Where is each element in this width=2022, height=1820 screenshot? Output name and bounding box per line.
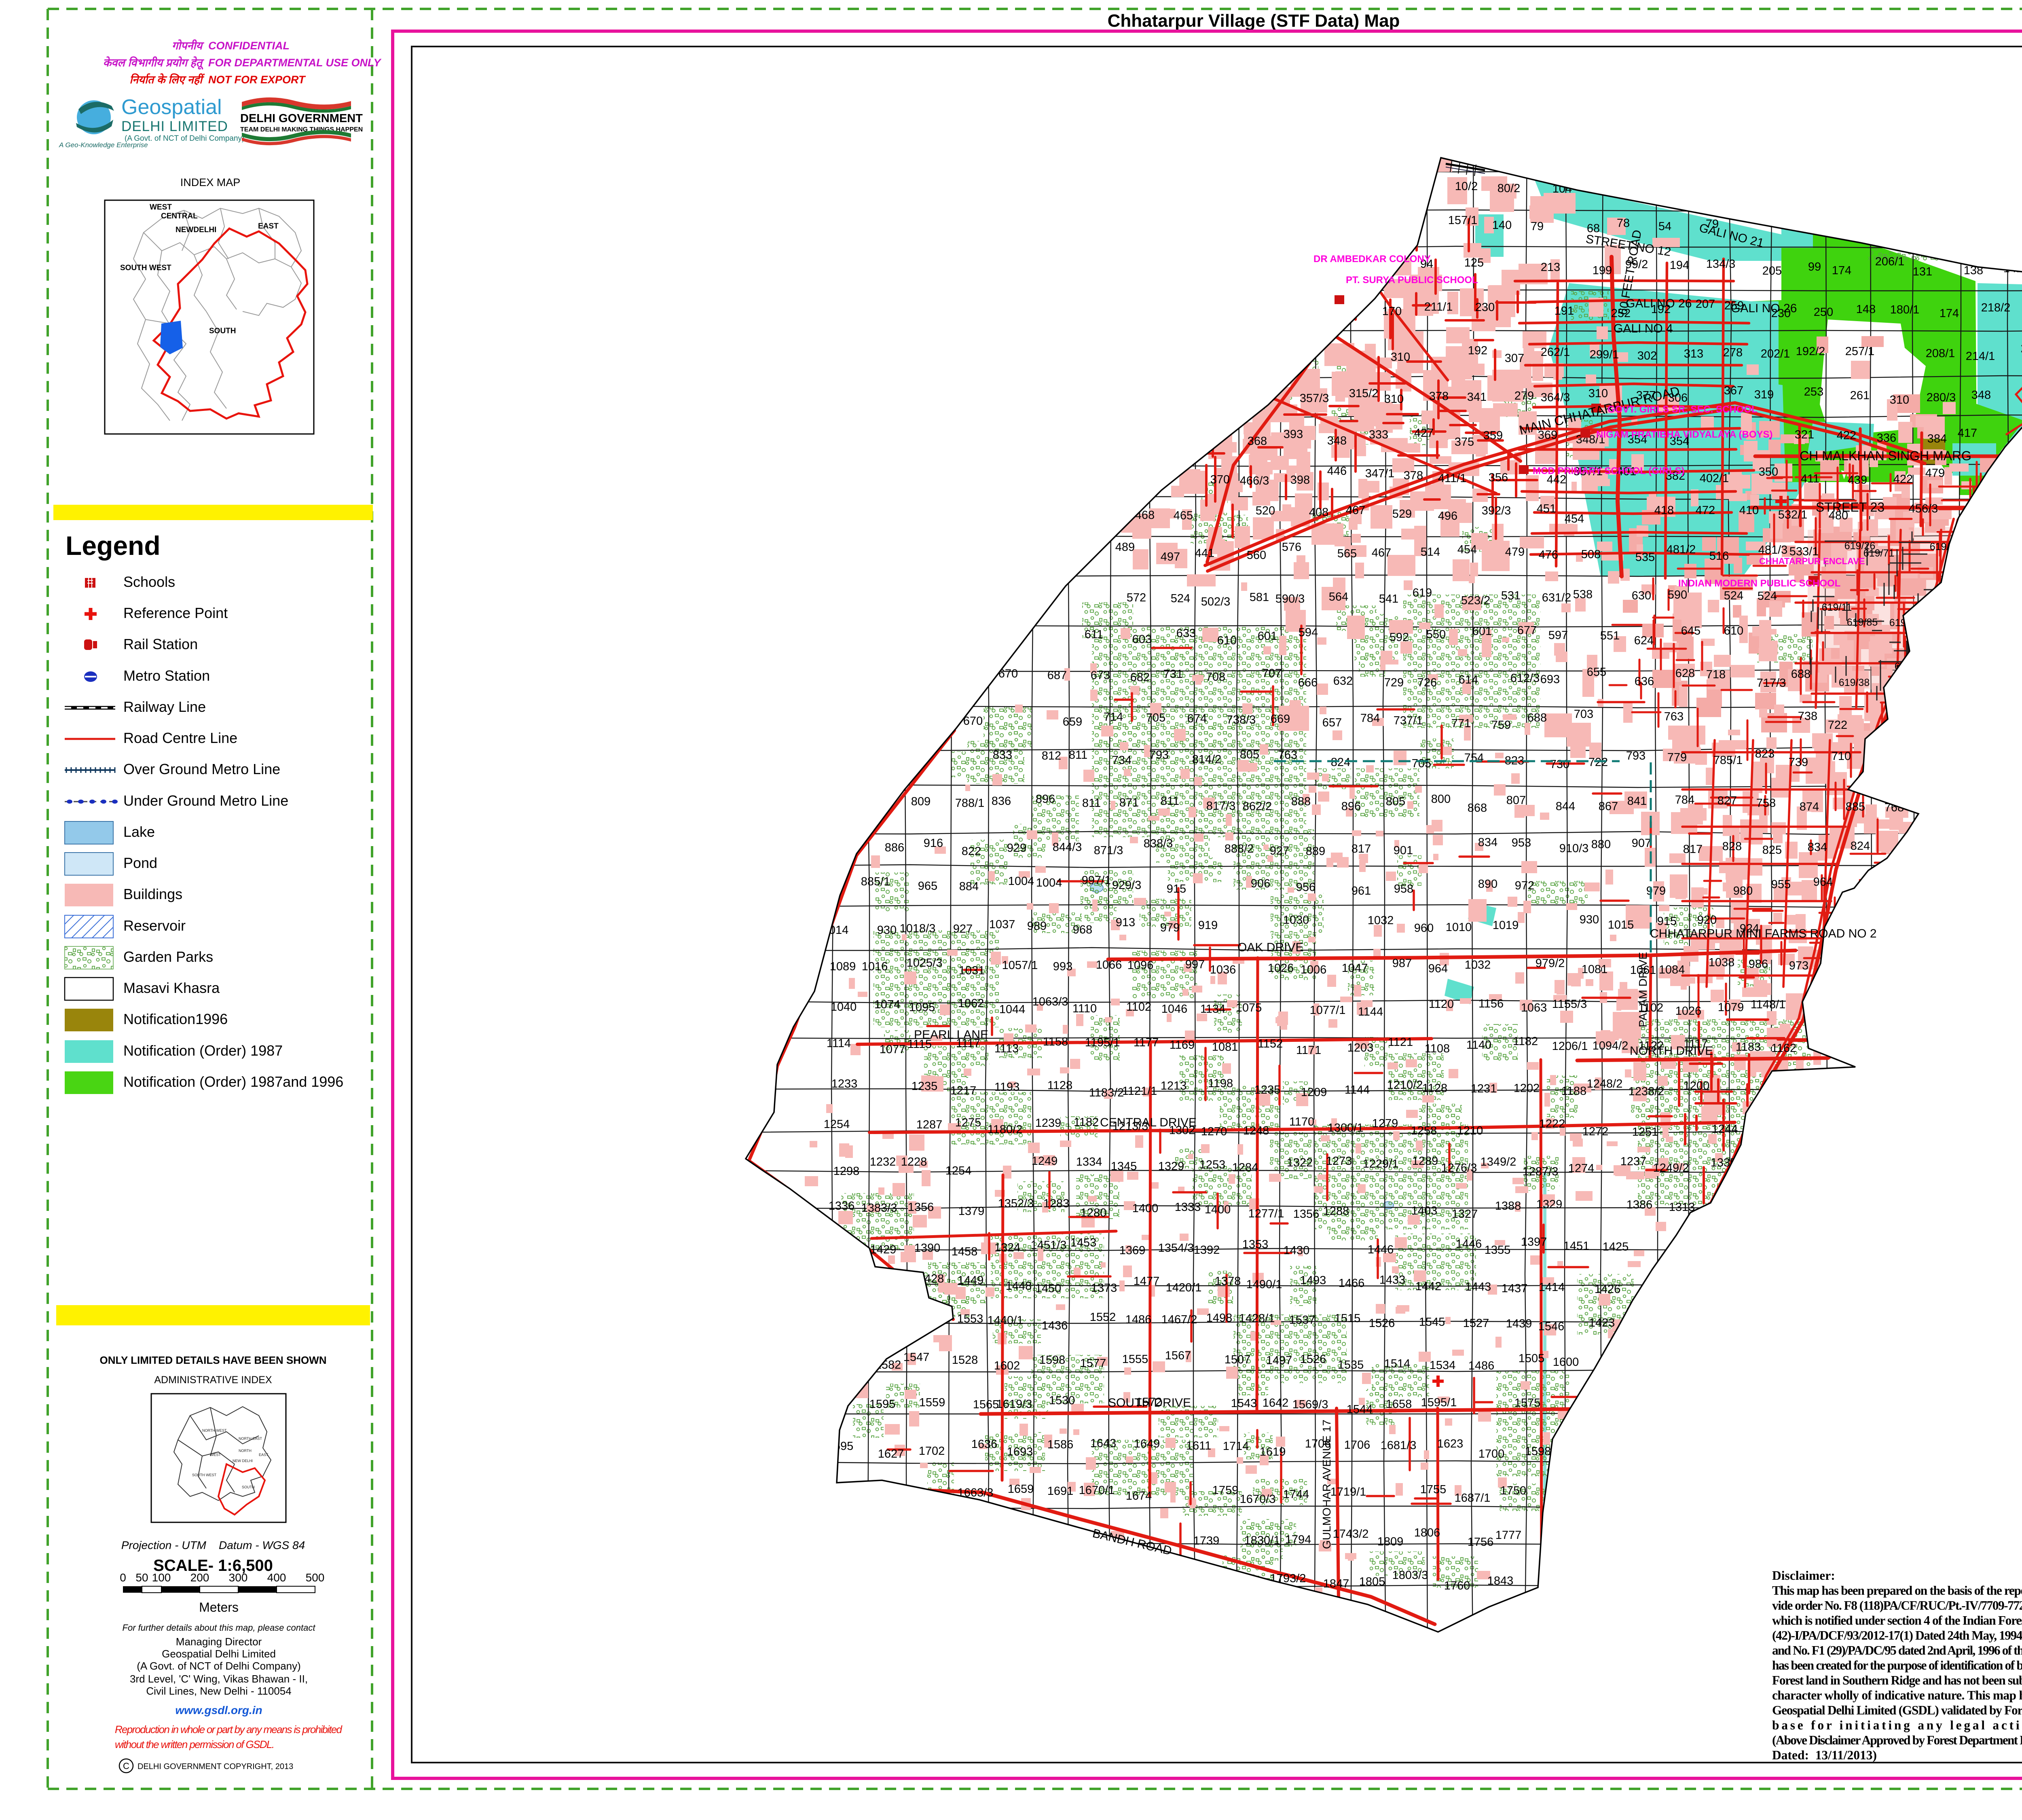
- svg-text:1270: 1270: [1201, 1125, 1227, 1138]
- svg-text:NORTH WEST: NORTH WEST: [202, 1428, 227, 1433]
- svg-text:1077: 1077: [880, 1043, 906, 1056]
- svg-text:871/3: 871/3: [1094, 844, 1123, 857]
- svg-text:1274: 1274: [1568, 1162, 1595, 1175]
- svg-text:310: 310: [1391, 351, 1410, 364]
- svg-text:1235: 1235: [912, 1080, 938, 1093]
- svg-text:1569/3: 1569/3: [1292, 1398, 1328, 1411]
- svg-text:817: 817: [1683, 843, 1703, 856]
- svg-text:Rail Station: Rail Station: [123, 636, 198, 652]
- svg-text:STREET 23: STREET 23: [1816, 500, 1885, 514]
- svg-text:564: 564: [1329, 590, 1348, 603]
- svg-text:601: 601: [1258, 630, 1277, 643]
- svg-text:A Geo-Knowledge Enterprise: A Geo-Knowledge Enterprise: [59, 141, 148, 149]
- svg-text:192: 192: [1468, 344, 1487, 357]
- svg-text:529: 529: [1392, 508, 1412, 521]
- svg-text:367: 367: [1724, 384, 1743, 397]
- svg-text:384: 384: [1927, 432, 1947, 445]
- svg-text:1383/3: 1383/3: [861, 1202, 897, 1215]
- svg-text:1793/2: 1793/2: [1270, 1572, 1306, 1585]
- svg-text:1700: 1700: [1478, 1448, 1505, 1460]
- svg-text:1575: 1575: [1514, 1397, 1541, 1409]
- svg-text:1335: 1335: [1711, 1156, 1737, 1169]
- svg-text:DELHI LIMITED: DELHI LIMITED: [121, 119, 228, 134]
- svg-text:359: 359: [1483, 429, 1503, 442]
- svg-text:1010: 1010: [1446, 921, 1472, 934]
- svg-text:1498: 1498: [1206, 1312, 1233, 1325]
- svg-text:1081: 1081: [1582, 963, 1608, 976]
- svg-text:Pond: Pond: [123, 855, 157, 871]
- svg-text:759: 759: [1491, 719, 1511, 732]
- svg-text:987: 987: [1392, 957, 1412, 970]
- svg-text:EAST: EAST: [258, 222, 279, 231]
- svg-text:707: 707: [1262, 667, 1282, 680]
- svg-text:1552: 1552: [1090, 1311, 1116, 1324]
- svg-text:1345: 1345: [1111, 1160, 1137, 1173]
- svg-text:1198: 1198: [1208, 1077, 1233, 1090]
- svg-text:1004: 1004: [1036, 876, 1062, 889]
- svg-text:422: 422: [1837, 429, 1856, 442]
- svg-text:919: 919: [1198, 919, 1218, 932]
- svg-text:142: 142: [2003, 262, 2022, 275]
- svg-text:1544: 1544: [1347, 1403, 1373, 1416]
- svg-text:410: 410: [1739, 504, 1759, 517]
- svg-text:Road Centre Line: Road Centre Line: [123, 730, 237, 746]
- svg-text:1277/1: 1277/1: [1248, 1207, 1284, 1220]
- svg-text:906: 906: [1251, 877, 1270, 890]
- svg-text:250: 250: [1814, 306, 1833, 319]
- svg-text:1706: 1706: [1344, 1439, 1371, 1452]
- svg-text:1443: 1443: [1465, 1280, 1491, 1293]
- svg-text:1210: 1210: [1457, 1124, 1483, 1137]
- svg-text:1553: 1553: [957, 1312, 984, 1325]
- svg-text:1477: 1477: [1134, 1275, 1160, 1288]
- svg-text:278: 278: [1723, 346, 1743, 359]
- svg-text:1232: 1232: [870, 1155, 896, 1168]
- svg-text:1015: 1015: [1608, 918, 1634, 931]
- svg-text:619/38: 619/38: [1839, 677, 1870, 688]
- svg-text:1289: 1289: [1412, 1155, 1438, 1168]
- svg-text:1777: 1777: [1495, 1529, 1522, 1542]
- svg-text:838/3: 838/3: [1144, 837, 1173, 850]
- svg-text:550: 550: [1426, 628, 1446, 641]
- svg-text:1193: 1193: [994, 1081, 1019, 1094]
- svg-text:99: 99: [1808, 260, 1821, 273]
- svg-text:729: 729: [1384, 676, 1404, 689]
- svg-text:659: 659: [1063, 715, 1082, 728]
- svg-text:1084: 1084: [1659, 963, 1685, 976]
- svg-text:784: 784: [1360, 712, 1380, 725]
- svg-text:1760: 1760: [1444, 1579, 1470, 1592]
- svg-text:SOUTH WEST: SOUTH WEST: [120, 264, 171, 272]
- svg-text:1066: 1066: [1096, 959, 1122, 971]
- svg-text:1244: 1244: [1712, 1123, 1738, 1136]
- svg-text:NEW DELHI: NEW DELHI: [233, 1459, 253, 1463]
- svg-text:427: 427: [1414, 427, 1434, 440]
- svg-text:DELHI GOVERNMENT COPYRIGHT, 20: DELHI GOVERNMENT COPYRIGHT, 2013: [137, 1762, 293, 1771]
- svg-text:1280: 1280: [1081, 1206, 1107, 1219]
- svg-text:50: 50: [135, 1571, 148, 1584]
- svg-text:1210/2: 1210/2: [1387, 1079, 1423, 1092]
- svg-text:400: 400: [267, 1571, 286, 1584]
- svg-text:811: 811: [1161, 795, 1179, 808]
- svg-text:For further details about this: For further details about this map, plea…: [123, 1623, 316, 1633]
- svg-text:1329: 1329: [1158, 1160, 1184, 1173]
- svg-text:1217: 1217: [950, 1084, 977, 1097]
- svg-text:1446: 1446: [1456, 1238, 1482, 1251]
- svg-text:705: 705: [1146, 711, 1165, 724]
- svg-text:vide order No. F8 (118)PA/CF/R: vide order No. F8 (118)PA/CF/RUC/Pt.-IV/…: [1772, 1598, 2022, 1613]
- svg-text:446: 446: [1327, 465, 1347, 478]
- svg-text:862/2: 862/2: [1243, 800, 1272, 813]
- svg-text:779: 779: [1667, 751, 1687, 764]
- svg-text:717/3: 717/3: [1757, 677, 1786, 690]
- svg-text:393: 393: [1284, 428, 1303, 441]
- svg-text:1298: 1298: [833, 1165, 860, 1178]
- svg-text:125: 125: [1464, 256, 1484, 269]
- svg-text:1254: 1254: [824, 1118, 850, 1131]
- svg-text:364/3: 364/3: [1541, 391, 1570, 404]
- svg-text:1094/2: 1094/2: [1593, 1039, 1629, 1052]
- svg-text:1526: 1526: [1300, 1353, 1326, 1366]
- svg-text:INDIAN MODERN PUBLIC SCHOOL: INDIAN MODERN PUBLIC SCHOOL: [1678, 578, 1840, 589]
- svg-text:1400: 1400: [1205, 1203, 1231, 1216]
- svg-text:479: 479: [1505, 546, 1525, 559]
- svg-text:Dated: 13/11/2013): Dated: 13/11/2013): [1772, 1748, 1877, 1762]
- svg-text:1206/1: 1206/1: [1552, 1040, 1588, 1053]
- svg-text:1486: 1486: [1125, 1313, 1152, 1326]
- svg-text:Notification1996: Notification1996: [123, 1011, 228, 1027]
- svg-text:EAST: EAST: [259, 1453, 269, 1457]
- svg-text:398: 398: [1290, 474, 1310, 487]
- svg-text:454: 454: [1457, 543, 1477, 556]
- svg-text:CH MALKHAN SINGH MARG: CH MALKHAN SINGH MARG: [1800, 449, 1971, 463]
- svg-text:1442: 1442: [1415, 1280, 1442, 1293]
- svg-text:496: 496: [1438, 510, 1457, 523]
- svg-text:619/27: 619/27: [1943, 613, 1974, 624]
- svg-text:ADMINISTRATIVE INDEX: ADMINISTRATIVE INDEX: [154, 1374, 272, 1386]
- svg-text:Over Ground Metro Line: Over Ground Metro Line: [123, 761, 280, 777]
- svg-text:788/1: 788/1: [955, 797, 985, 810]
- svg-text:1428/1: 1428/1: [1239, 1312, 1275, 1325]
- svg-text:1200: 1200: [1684, 1079, 1710, 1092]
- svg-text:1238/2: 1238/2: [1629, 1085, 1665, 1098]
- svg-text:402/1: 402/1: [1700, 472, 1729, 485]
- svg-text:GALI NO 4: GALI NO 4: [1614, 322, 1673, 335]
- svg-text:1369: 1369: [1119, 1244, 1146, 1257]
- svg-text:631/2: 631/2: [1542, 591, 1571, 604]
- svg-text:958: 958: [1394, 882, 1413, 895]
- svg-text:Reservoir: Reservoir: [123, 917, 186, 934]
- svg-text:1619/3: 1619/3: [996, 1398, 1032, 1411]
- svg-text:Buildings: Buildings: [123, 886, 182, 902]
- svg-text:964: 964: [1813, 876, 1833, 889]
- svg-text:Masavi Khasra: Masavi Khasra: [123, 980, 220, 996]
- svg-text:871: 871: [1119, 796, 1139, 809]
- svg-text:378: 378: [1404, 469, 1423, 482]
- svg-text:1448: 1448: [1006, 1280, 1032, 1293]
- svg-text:674: 674: [1187, 712, 1207, 725]
- svg-text:Geospatial: Geospatial: [121, 95, 222, 119]
- svg-text:1515: 1515: [1335, 1312, 1361, 1325]
- svg-text:411/1: 411/1: [1438, 472, 1466, 485]
- svg-text:1693: 1693: [1007, 1445, 1033, 1458]
- svg-text:822: 822: [962, 845, 981, 858]
- svg-text:809: 809: [911, 795, 931, 808]
- svg-text:गोपनीय: गोपनीय: [172, 39, 205, 52]
- svg-text:Geospatial Delhi Limited: Geospatial Delhi Limited: [162, 1648, 276, 1660]
- svg-text:1354/3: 1354/3: [1158, 1242, 1194, 1255]
- svg-text:has been created for the purpo: has been created for the purpose of iden…: [1772, 1658, 2022, 1672]
- svg-text:1288: 1288: [1323, 1205, 1349, 1218]
- svg-text:SOUTH: SOUTH: [209, 327, 236, 335]
- svg-text:1439: 1439: [1506, 1317, 1532, 1330]
- svg-text:GOVT. GIRLS SR. SEC. SCHOOL: GOVT. GIRLS SR. SEC. SCHOOL: [1607, 404, 1758, 415]
- svg-text:1158: 1158: [1043, 1035, 1068, 1048]
- svg-text:1177: 1177: [1134, 1036, 1159, 1049]
- svg-text:980: 980: [1733, 885, 1753, 897]
- svg-text:874: 874: [1800, 800, 1819, 813]
- svg-text:619/11: 619/11: [1822, 602, 1852, 613]
- svg-text:576: 576: [1282, 541, 1301, 554]
- svg-text:1089: 1089: [830, 960, 856, 973]
- svg-text:754: 754: [1464, 751, 1484, 764]
- svg-text:1036: 1036: [1210, 963, 1236, 976]
- svg-text:800: 800: [1431, 793, 1451, 806]
- svg-text:1809: 1809: [1377, 1535, 1404, 1548]
- svg-text:1681/3: 1681/3: [1381, 1439, 1417, 1452]
- svg-text:1446: 1446: [1368, 1243, 1394, 1256]
- svg-text:1659: 1659: [1008, 1483, 1034, 1496]
- svg-text:307: 307: [1505, 352, 1524, 365]
- svg-text:1352/3: 1352/3: [998, 1197, 1034, 1210]
- svg-text:734: 734: [1112, 754, 1132, 767]
- svg-text:885/1: 885/1: [861, 875, 890, 888]
- svg-text:OAK DRIVE: OAK DRIVE: [1237, 941, 1303, 954]
- svg-text:610: 610: [1217, 634, 1237, 647]
- svg-text:1322: 1322: [1287, 1156, 1313, 1169]
- svg-text:1373: 1373: [1091, 1282, 1117, 1295]
- svg-text:Civil Lines, New Delhi - 11005: Civil Lines, New Delhi - 110054: [146, 1685, 291, 1697]
- svg-text:979/2: 979/2: [1536, 957, 1565, 970]
- svg-text:1155/3: 1155/3: [1552, 998, 1587, 1011]
- svg-text:257/1: 257/1: [1845, 345, 1875, 358]
- svg-text:817/3: 817/3: [1206, 800, 1236, 813]
- svg-text:321: 321: [1795, 428, 1814, 441]
- svg-text:1743/2: 1743/2: [1333, 1528, 1369, 1541]
- svg-text:1121: 1121: [1388, 1036, 1413, 1049]
- svg-text:Chhatarpur Village (STF Data): Chhatarpur Village (STF Data) Map: [1108, 11, 1400, 31]
- svg-text:669: 669: [1271, 713, 1290, 726]
- svg-text:392/3: 392/3: [1482, 504, 1511, 517]
- svg-text:370: 370: [1210, 473, 1230, 486]
- svg-text:836: 836: [992, 795, 1011, 808]
- svg-text:1202: 1202: [1514, 1082, 1540, 1095]
- svg-text:601: 601: [1472, 625, 1492, 638]
- svg-text:1014: 1014: [823, 924, 849, 937]
- svg-text:805: 805: [1240, 748, 1259, 761]
- svg-text:1546: 1546: [1538, 1320, 1565, 1333]
- svg-text:590/3: 590/3: [1275, 593, 1305, 605]
- svg-text:1006: 1006: [1301, 963, 1327, 976]
- svg-text:1830/1: 1830/1: [1244, 1534, 1280, 1547]
- svg-text:1019: 1019: [1493, 919, 1519, 932]
- svg-text:1279: 1279: [1372, 1117, 1398, 1130]
- svg-text:1497: 1497: [1266, 1354, 1292, 1367]
- svg-text:54: 54: [1658, 220, 1671, 233]
- svg-text:192/2: 192/2: [1796, 345, 1825, 358]
- svg-text:422: 422: [1893, 473, 1913, 486]
- svg-text:Reference Point: Reference Point: [123, 605, 228, 621]
- svg-text:1032: 1032: [1465, 959, 1491, 971]
- svg-text:NIGAM PRATIBHA VIDYALAYA (BOYS: NIGAM PRATIBHA VIDYALAYA (BOYS): [1596, 429, 1773, 440]
- svg-text:565: 565: [1337, 547, 1357, 560]
- svg-text:1379: 1379: [958, 1205, 985, 1218]
- svg-text:PALAM DRIVE: PALAM DRIVE: [1637, 952, 1649, 1027]
- svg-text:817: 817: [1352, 842, 1371, 855]
- svg-text:1188: 1188: [1561, 1085, 1586, 1098]
- svg-text:1451: 1451: [1563, 1240, 1590, 1253]
- svg-text:714: 714: [1104, 711, 1123, 724]
- svg-text:1547: 1547: [903, 1351, 930, 1364]
- svg-text:1276/3: 1276/3: [1441, 1162, 1477, 1175]
- svg-text:1228: 1228: [901, 1155, 927, 1168]
- svg-text:1642: 1642: [1263, 1397, 1289, 1409]
- svg-text:670: 670: [963, 715, 983, 728]
- svg-text:960: 960: [1414, 922, 1434, 935]
- svg-text:NEWDELHI: NEWDELHI: [176, 226, 216, 234]
- svg-text:character wholly of indicative: character wholly of indicative nature. T…: [1772, 1688, 2022, 1702]
- svg-text:207: 207: [1696, 298, 1715, 311]
- svg-text:1582: 1582: [875, 1359, 901, 1371]
- svg-text:1545: 1545: [1419, 1316, 1445, 1329]
- svg-text:1249/2: 1249/2: [1653, 1162, 1689, 1175]
- svg-text:218/2: 218/2: [1981, 301, 2011, 314]
- svg-text:208/1: 208/1: [1926, 347, 1955, 360]
- svg-text:479: 479: [1925, 467, 1945, 480]
- svg-text:1162: 1162: [1771, 1042, 1796, 1055]
- svg-text:1847: 1847: [1323, 1577, 1349, 1590]
- svg-text:1598: 1598: [1039, 1354, 1066, 1367]
- svg-text:1349/2: 1349/2: [1481, 1155, 1516, 1168]
- svg-text:1714: 1714: [1223, 1440, 1249, 1453]
- svg-text:1543: 1543: [1231, 1397, 1257, 1410]
- svg-text:357/3: 357/3: [1300, 392, 1329, 405]
- svg-text:1016: 1016: [862, 960, 888, 973]
- svg-text:868: 868: [1468, 802, 1487, 815]
- svg-text:1430: 1430: [1284, 1244, 1310, 1257]
- svg-text:633: 633: [1176, 627, 1196, 640]
- svg-text:Lake: Lake: [123, 823, 155, 840]
- svg-text:1026: 1026: [1675, 1005, 1702, 1018]
- svg-text:199: 199: [1593, 264, 1612, 277]
- svg-text:Notification (Order) 1987and 1: Notification (Order) 1987and 1996: [123, 1073, 343, 1090]
- svg-text:1429: 1429: [870, 1243, 897, 1256]
- svg-text:1121/1: 1121/1: [1122, 1085, 1157, 1098]
- svg-text:1602: 1602: [994, 1359, 1020, 1372]
- svg-text:687: 687: [1047, 669, 1067, 682]
- svg-text:PEARL LANE: PEARL LANE: [914, 1028, 988, 1041]
- svg-text:439: 439: [1848, 474, 1867, 487]
- svg-text:1233: 1233: [831, 1077, 858, 1090]
- svg-text:1623: 1623: [1437, 1437, 1464, 1450]
- svg-text:1062: 1062: [958, 997, 984, 1010]
- svg-text:955: 955: [1771, 878, 1791, 891]
- svg-text:468: 468: [1135, 509, 1155, 522]
- svg-text:and No. F1 (29)/PA/DC/95 dated: and No. F1 (29)/PA/DC/95 dated 2nd April…: [1772, 1643, 2022, 1657]
- svg-text:170: 170: [1382, 305, 1402, 318]
- svg-text:base for initiating any legal: base for initiating any legal action or …: [1772, 1718, 2022, 1732]
- svg-text:763: 763: [1278, 749, 1297, 762]
- svg-text:279: 279: [1514, 389, 1534, 402]
- svg-text:514: 514: [1421, 546, 1440, 559]
- svg-text:705: 705: [1412, 757, 1431, 770]
- svg-text:1490/1: 1490/1: [1246, 1278, 1282, 1291]
- svg-text:758: 758: [1756, 797, 1776, 810]
- svg-text:632: 632: [1333, 675, 1353, 688]
- svg-text:1170: 1170: [1289, 1115, 1314, 1128]
- svg-text:920: 920: [1697, 914, 1717, 927]
- svg-text:930: 930: [877, 924, 897, 937]
- svg-text:261: 261: [1850, 389, 1870, 402]
- svg-text:1300/1: 1300/1: [1328, 1122, 1364, 1134]
- svg-text:763: 763: [1664, 710, 1684, 723]
- svg-text:1156: 1156: [1478, 997, 1504, 1010]
- svg-text:C: C: [123, 1761, 129, 1771]
- svg-text:737/1: 737/1: [1394, 714, 1423, 727]
- svg-text:1047: 1047: [1342, 962, 1368, 975]
- svg-text:833: 833: [993, 749, 1012, 762]
- svg-text:451: 451: [1537, 502, 1556, 515]
- svg-text:657: 657: [1322, 716, 1342, 729]
- svg-text:1627: 1627: [878, 1448, 904, 1460]
- svg-text:489: 489: [1115, 541, 1135, 554]
- svg-text:824: 824: [1331, 756, 1350, 769]
- svg-text:1075: 1075: [1236, 1001, 1262, 1014]
- svg-text:1595/1: 1595/1: [1421, 1396, 1457, 1409]
- svg-text:DR AMBEDKAR COLONY: DR AMBEDKAR COLONY: [1313, 254, 1431, 265]
- svg-text:508: 508: [1581, 548, 1601, 561]
- svg-text:1674: 1674: [1126, 1490, 1152, 1503]
- svg-text:1144: 1144: [1345, 1084, 1370, 1096]
- svg-text:1037: 1037: [989, 918, 1015, 931]
- svg-text:541: 541: [1379, 593, 1398, 605]
- svg-text:MCD PRIMARY SCHOOL (GIRLS): MCD PRIMARY SCHOOL (GIRLS): [1533, 466, 1685, 476]
- svg-text:WEST: WEST: [150, 203, 172, 212]
- svg-text:655: 655: [1587, 666, 1606, 679]
- svg-text:560: 560: [1247, 549, 1266, 562]
- svg-text:885: 885: [1846, 800, 1865, 813]
- svg-text:619: 619: [1413, 586, 1432, 599]
- svg-text:SCALE- 1:6,500: SCALE- 1:6,500: [153, 1557, 273, 1575]
- svg-text:454: 454: [1565, 512, 1584, 525]
- svg-text:738/3: 738/3: [1227, 713, 1256, 726]
- svg-text:630: 630: [1632, 589, 1651, 602]
- svg-text:1559: 1559: [919, 1396, 945, 1409]
- svg-text:619/12: 619/12: [1936, 646, 1967, 658]
- svg-text:619/31: 619/31: [1947, 580, 1978, 592]
- svg-text:Railway Line: Railway Line: [123, 698, 206, 715]
- svg-text:1356: 1356: [908, 1201, 934, 1214]
- svg-text:202/1: 202/1: [1761, 347, 1790, 360]
- svg-text:1209: 1209: [1301, 1086, 1327, 1099]
- svg-text:SOUTH WEST: SOUTH WEST: [192, 1473, 217, 1477]
- svg-text:1458: 1458: [952, 1245, 978, 1258]
- svg-text:Geospatial Delhi Limited (GSDL: Geospatial Delhi Limited (GSDL) validate…: [1772, 1703, 2022, 1717]
- svg-text:131: 131: [1913, 265, 1932, 278]
- svg-text:1102: 1102: [1126, 1001, 1151, 1014]
- svg-text:CHHATARPUR MINI FARMS ROAD NO: CHHATARPUR MINI FARMS ROAD NO 2: [1650, 927, 1877, 940]
- svg-text:1229/1: 1229/1: [1363, 1158, 1399, 1170]
